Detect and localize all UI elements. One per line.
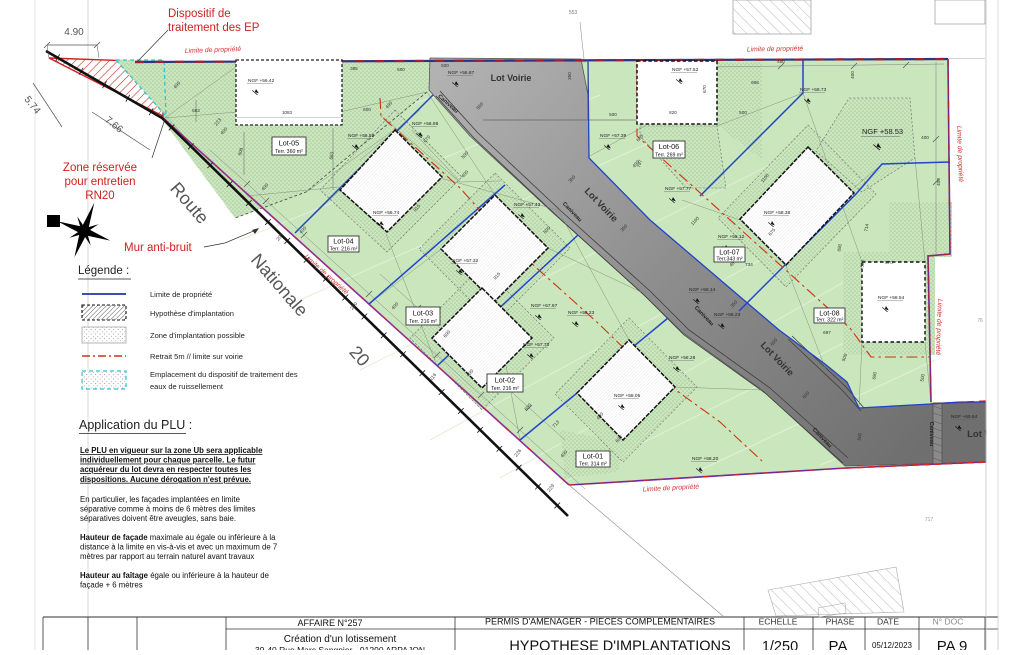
svg-text:Lot-03: Lot-03 [413,309,433,318]
svg-text:NGF +58.36: NGF +58.36 [764,210,791,216]
svg-text:908: 908 [751,80,759,85]
svg-text:ECHELLE: ECHELLE [759,617,798,627]
svg-text:NGF +58.28: NGF +58.28 [669,355,696,361]
svg-text:Lot-02: Lot-02 [495,376,515,385]
svg-text:PA: PA [829,638,848,650]
svg-text:NGF +56.98: NGF +56.98 [412,121,439,127]
svg-text:individuellement pour chaque p: individuellement pour chaque parcelle. L… [80,456,255,465]
svg-text:734: 734 [745,262,753,267]
svg-text:NGF +58.53: NGF +58.53 [862,127,903,136]
svg-text:PA 9: PA 9 [937,638,968,650]
svg-text:séparatives doivent être aveug: séparatives doivent être aveugles, sans … [80,514,236,523]
svg-text:NGF +58.05: NGF +58.05 [614,393,641,399]
svg-text:39-40 Rue Marc Sangnier - 9129: 39-40 Rue Marc Sangnier - 91290 ARPAJON [255,645,425,650]
svg-text:Terr. 322 m²: Terr. 322 m² [816,318,844,324]
svg-text:mètres par rapport au terrain: mètres par rapport au terrain naturel av… [80,552,254,561]
svg-text:4.90: 4.90 [64,27,84,38]
svg-text:Caniveau: Caniveau [928,422,934,447]
svg-text:NGF +58.14: NGF +58.14 [689,287,716,293]
svg-text:400: 400 [850,71,855,79]
svg-text:NGF +57.77: NGF +57.77 [665,186,692,192]
svg-text:NGF +58.20: NGF +58.20 [692,456,719,462]
svg-text:Zone d'implantation possible: Zone d'implantation possible [150,331,245,340]
svg-text:1/250: 1/250 [762,639,798,650]
svg-text:400: 400 [921,135,929,140]
svg-text:NGF +58.73: NGF +58.73 [800,87,827,93]
svg-text:pour entretien: pour entretien [65,176,136,188]
svg-text:Lot Voirie: Lot Voirie [491,73,532,83]
svg-text:663: 663 [192,108,200,113]
svg-text:NGF +58.12: NGF +58.12 [718,234,745,240]
svg-text:76: 76 [977,318,983,324]
svg-text:RN20: RN20 [85,190,114,202]
svg-text:NGF +58.54: NGF +58.54 [878,295,905,301]
svg-text:400: 400 [777,59,785,64]
svg-text:Dispositif de: Dispositif de [168,8,231,20]
svg-text:séparative comme à moins de 6: séparative comme à moins de 6 mètres des… [80,505,256,514]
svg-text:dispositions. Aucune dérogatio: dispositions. Aucune dérogation n'est pr… [80,475,251,484]
svg-text:500: 500 [739,110,747,115]
svg-text:Terr. 269 m²: Terr. 269 m² [655,152,683,158]
svg-text:Limite de propriété: Limite de propriété [747,46,804,54]
svg-text:HYPOTHESE D'IMPLANTATIONS: HYPOTHESE D'IMPLANTATIONS [509,639,730,651]
svg-text:Le PLU en vigueur sur la zone: Le PLU en vigueur sur la zone Ub sera ap… [80,446,263,455]
svg-text:PERMIS D'AMÉNAGER - PIECES COM: PERMIS D'AMÉNAGER - PIECES COMPLEMENTAIR… [485,617,715,627]
svg-text:Emplacement du dispositif de t: Emplacement du dispositif de traitement … [150,370,298,379]
svg-text:Lot-01: Lot-01 [583,452,603,461]
svg-text:NGF +57.32: NGF +57.32 [452,258,479,264]
svg-text:AFFAIRE N°257: AFFAIRE N°257 [297,618,362,628]
svg-text:500: 500 [441,63,449,68]
svg-text:NGF +57.52: NGF +57.52 [672,67,699,73]
svg-text:Mur anti-bruit: Mur anti-bruit [124,242,193,254]
svg-text:DATE: DATE [877,617,899,627]
svg-text:Hypothèse d'implantation: Hypothèse d'implantation [150,309,234,318]
svg-text:NGF +58.23: NGF +58.23 [568,310,595,316]
svg-text:NGF +56.42: NGF +56.42 [248,78,275,84]
svg-text:NGF +57.43: NGF +57.43 [514,202,541,208]
svg-text:NGF +56.74: NGF +56.74 [373,210,400,216]
svg-text:Lot-04: Lot-04 [333,237,353,246]
svg-text:1083: 1083 [282,110,293,115]
svg-text:500: 500 [397,67,405,72]
svg-text:traitement des EP: traitement des EP [168,22,260,34]
svg-text:600: 600 [363,107,371,112]
svg-text:Terr. 360 m²: Terr. 360 m² [275,149,303,155]
svg-text:NGF +57.97: NGF +57.97 [531,303,558,309]
svg-text:400: 400 [936,178,941,186]
svg-text:Zone réservée: Zone réservée [63,162,137,174]
svg-text:697: 697 [823,330,831,335]
svg-text:Légende :: Légende : [78,265,129,277]
svg-text:NGF +57.39: NGF +57.39 [600,133,627,139]
svg-text:05/12/2023: 05/12/2023 [872,641,913,650]
svg-text:670: 670 [885,260,893,265]
svg-text:NGF +58.23: NGF +58.23 [714,312,741,318]
svg-text:distance à la limite en vis-à-: distance à la limite en vis-à-vis et ave… [80,543,277,552]
svg-text:553: 553 [569,10,578,16]
svg-text:Hauteur de façade maximale au: Hauteur de façade maximale au égale ou i… [80,533,276,542]
svg-text:Retrait 5m // limite sur voiri: Retrait 5m // limite sur voirie [150,352,243,361]
svg-text:Terr.343 m²: Terr.343 m² [716,257,743,263]
svg-text:717: 717 [925,517,934,523]
svg-text:500: 500 [609,112,617,117]
svg-text:Lot-06: Lot-06 [659,142,679,151]
svg-text:Application du PLU :: Application du PLU : [79,418,192,432]
svg-text:eaux de ruissellement: eaux de ruissellement [150,382,224,391]
svg-text:Terr. 216 m²: Terr. 216 m² [491,386,519,392]
svg-text:Limite de propriété: Limite de propriété [150,290,212,299]
svg-text:670: 670 [702,85,707,93]
svg-text:Terr. 216 m²: Terr. 216 m² [330,246,358,252]
svg-text:Terr. 216 m²: Terr. 216 m² [409,319,437,325]
svg-text:N° DOC: N° DOC [933,617,964,627]
svg-text:Lot-08: Lot-08 [819,308,839,317]
svg-text:NGF +56.87: NGF +56.87 [448,70,475,76]
svg-text:385: 385 [350,66,358,71]
svg-text:acquéreur du lot devra en resp: acquéreur du lot devra en respecter tout… [80,465,252,474]
svg-text:820: 820 [669,110,677,115]
svg-text:Création d'un lotissement: Création d'un lotissement [284,634,397,645]
svg-text:façade + 6 mètres: façade + 6 mètres [80,581,143,590]
svg-text:Lot-05: Lot-05 [279,139,299,148]
svg-text:NGF +60.64: NGF +60.64 [951,414,978,420]
svg-text:Hauteur au faîtage égale ou in: Hauteur au faîtage égale ou inférieure à… [80,571,269,580]
svg-text:Lot-07: Lot-07 [719,247,739,256]
svg-text:Terr. 314 m²: Terr. 314 m² [579,461,607,467]
svg-text:NGF +56.59: NGF +56.59 [348,133,375,139]
svg-text:En particulier, les façades im: En particulier, les façades implantées e… [80,495,240,504]
svg-text:NGF +57.78: NGF +57.78 [523,342,550,348]
svg-text:350: 350 [567,72,572,80]
svg-text:PHASE: PHASE [826,617,855,627]
